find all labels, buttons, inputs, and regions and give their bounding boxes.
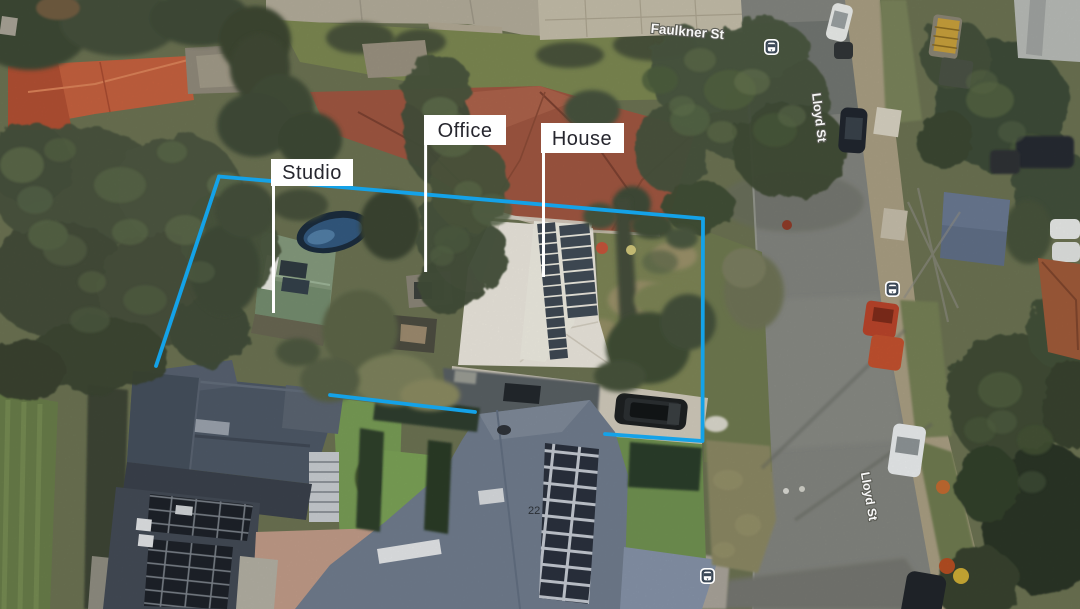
- svg-text:Office: Office: [438, 120, 493, 142]
- svg-text:Studio: Studio: [282, 162, 342, 184]
- svg-text:House: House: [552, 128, 612, 150]
